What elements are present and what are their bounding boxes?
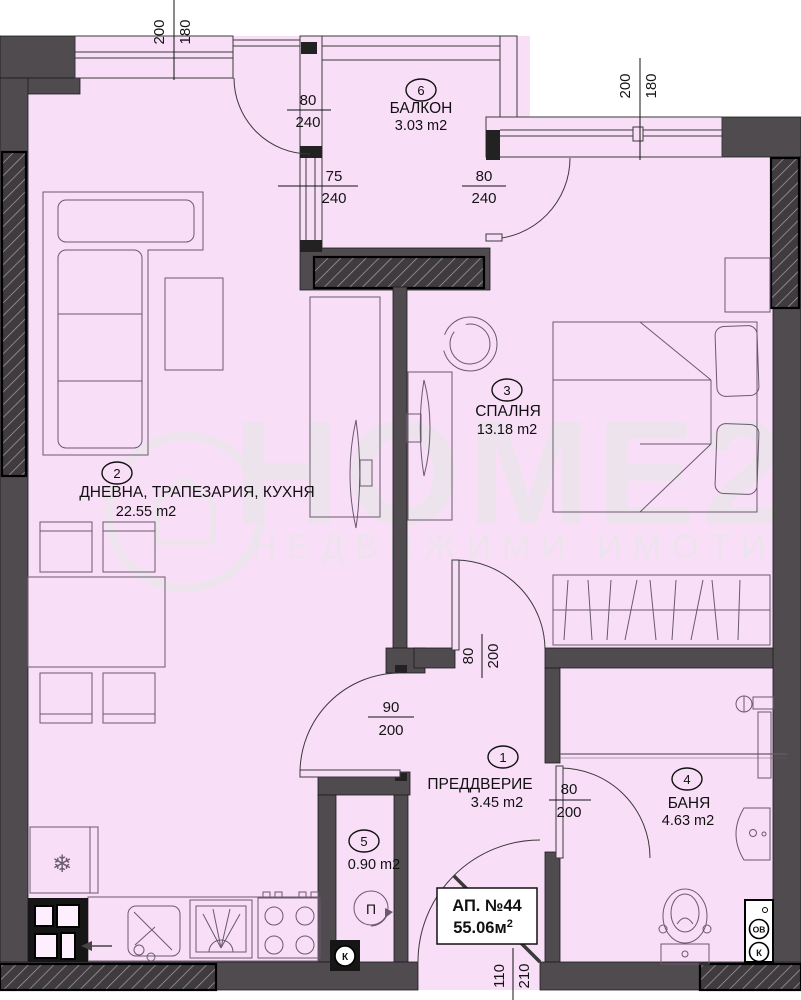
svg-text:ДНЕВНА, ТРАПЕЗАРИЯ, КУХНЯ: ДНЕВНА, ТРАПЕЗАРИЯ, КУХНЯ [79, 484, 314, 501]
svg-text:1: 1 [499, 750, 506, 765]
svg-text:СПАЛНЯ: СПАЛНЯ [475, 403, 541, 420]
svg-text:75: 75 [326, 168, 343, 185]
svg-text:0.90 m2: 0.90 m2 [348, 857, 400, 873]
balcony-railing-top [300, 36, 517, 60]
svg-text:210: 210 [516, 963, 533, 988]
snowflake-icon: ❄ [52, 850, 72, 878]
balcony-railing-right [500, 36, 517, 117]
svg-text:110: 110 [491, 964, 508, 988]
svg-text:3.03 m2: 3.03 m2 [395, 118, 447, 134]
svg-text:200: 200 [617, 73, 634, 98]
svg-text:ПРЕДДВЕРИЕ: ПРЕДДВЕРИЕ [427, 776, 532, 793]
apartment-label-box: АП. №44 55.06м2 [437, 888, 537, 944]
svg-text:80: 80 [561, 781, 578, 798]
balcony-corner-mark [301, 42, 317, 54]
svg-text:240: 240 [295, 114, 320, 131]
apartment-area: 55.06м2 [453, 918, 513, 937]
balcony-railing-left [300, 36, 322, 250]
wall-bedroom-bottom-a [414, 648, 455, 668]
svg-text:13.18 m2: 13.18 m2 [477, 422, 537, 438]
svg-text:200: 200 [556, 804, 581, 821]
svg-text:180: 180 [643, 73, 660, 98]
wall-balcony-beam-hatch [314, 257, 484, 288]
hall-door-jamb-top [395, 665, 407, 673]
svg-text:200: 200 [485, 643, 502, 668]
bedroom-window-band [486, 117, 722, 157]
wall-bottom-left-hatch [0, 964, 216, 990]
svg-text:3: 3 [503, 383, 510, 398]
wall-closet-left [318, 795, 336, 962]
bedroom-window-mullion [633, 127, 643, 141]
svg-text:3.45 m2: 3.45 m2 [471, 795, 523, 811]
svg-text:80: 80 [460, 648, 477, 665]
room-fill-balcony-doorway [233, 36, 310, 78]
svg-text:240: 240 [321, 190, 346, 207]
svg-text:80: 80 [476, 168, 493, 185]
svg-text:БАЛКОН: БАЛКОН [390, 100, 453, 117]
svg-text:200: 200 [151, 19, 168, 44]
bedroom-door-jamb [486, 130, 500, 160]
wall-divider [393, 287, 407, 648]
k-symbol: К [342, 952, 349, 963]
wall-bath-left-a [545, 668, 560, 763]
wall-bottom-right-hatch [700, 964, 801, 990]
apartment-number: АП. №44 [452, 897, 522, 915]
wall-bedroom-bottom-b [545, 648, 801, 668]
wall-top-right-corner [722, 117, 801, 157]
floor-plan-svg: HOME2U НЕДВИЖИМИ ИМОТИ [0, 0, 801, 1000]
balcony-window-jamb-top [300, 146, 322, 158]
k-symbol: К [756, 948, 762, 959]
wall-bath-left-b [545, 852, 560, 962]
duct-shaft [28, 898, 88, 962]
wall-top-left [0, 36, 75, 78]
svg-text:2: 2 [113, 466, 120, 481]
svg-text:БАНЯ: БАНЯ [668, 795, 711, 812]
balcony-window-jamb-bottom [300, 240, 322, 252]
floor-plan-page: HOME2U НЕДВИЖИМИ ИМОТИ [0, 0, 801, 1000]
svg-text:80: 80 [300, 92, 317, 109]
wall-column-right [771, 158, 799, 308]
svg-text:4: 4 [683, 772, 690, 787]
svg-text:6: 6 [417, 83, 424, 98]
p-symbol: П [366, 901, 376, 917]
ov-symbol: ОВ [753, 925, 766, 935]
bath-shaft: ОВ К [745, 900, 773, 962]
svg-text:4.63 m2: 4.63 m2 [662, 813, 714, 829]
svg-text:22.55 m2: 22.55 m2 [116, 504, 176, 520]
svg-text:240: 240 [471, 190, 496, 207]
wall-column-left [2, 152, 26, 476]
room-fill-bedroom [407, 117, 773, 662]
room-fill-bathroom [560, 662, 773, 962]
watermark-tagline: НЕДВИЖИМИ ИМОТИ [252, 528, 777, 566]
svg-text:200: 200 [378, 722, 403, 739]
svg-text:5: 5 [360, 834, 367, 849]
svg-text:180: 180 [177, 19, 194, 44]
svg-text:90: 90 [383, 699, 400, 716]
k-box-closet: К [330, 940, 360, 971]
